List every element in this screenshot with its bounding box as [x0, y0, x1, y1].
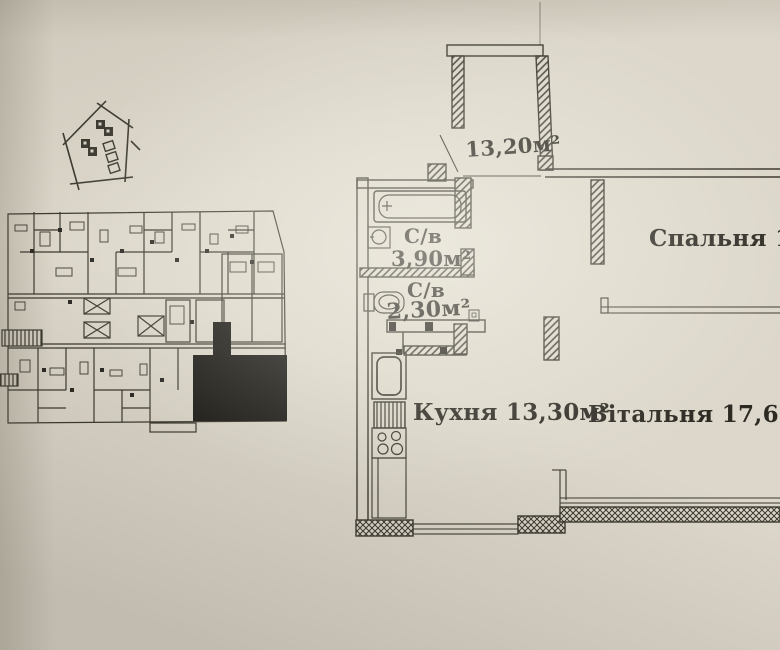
sink-icon — [368, 227, 390, 248]
floor-plan-drawing: 13,20м² С/в 3,90м² С/в 2,30м² Кухня 13,3… — [0, 0, 780, 650]
site-plan-sketch — [63, 101, 140, 190]
floor-plan-photo: 13,20м² С/в 3,90м² С/в 2,30м² Кухня 13,3… — [0, 0, 780, 650]
apartment-plan: 13,20м² С/в 3,90м² С/в 2,30м² Кухня 13,3… — [356, 2, 780, 536]
structural-column — [544, 317, 559, 360]
kitchen-counter — [372, 458, 406, 518]
site-markers-icon — [103, 141, 120, 174]
bathroom-area-label: 3,90м² — [391, 246, 471, 271]
kitchen-label: Кухня 13,30м² — [413, 399, 610, 426]
elevator-shaft-icon — [84, 298, 164, 338]
window-walls — [356, 470, 780, 536]
left-outer-wall — [357, 178, 368, 522]
living-room-label: Вітальня 17,60м² — [588, 401, 780, 428]
wc-area-label: 2,30м² — [386, 295, 471, 325]
fridge-icon — [372, 353, 406, 399]
stove-icon — [372, 428, 406, 458]
highlighted-apartment — [193, 322, 287, 421]
bathtub-icon — [374, 191, 466, 222]
bathroom-label: С/в — [404, 224, 442, 248]
stairs-icon — [2, 330, 42, 346]
door-post — [428, 164, 446, 181]
kitchen-counter-block — [374, 402, 405, 428]
bedroom-partition-wall — [591, 180, 604, 264]
bedroom-label: Спальня 15,90 — [649, 225, 780, 252]
building-floor-plan — [0, 211, 287, 432]
